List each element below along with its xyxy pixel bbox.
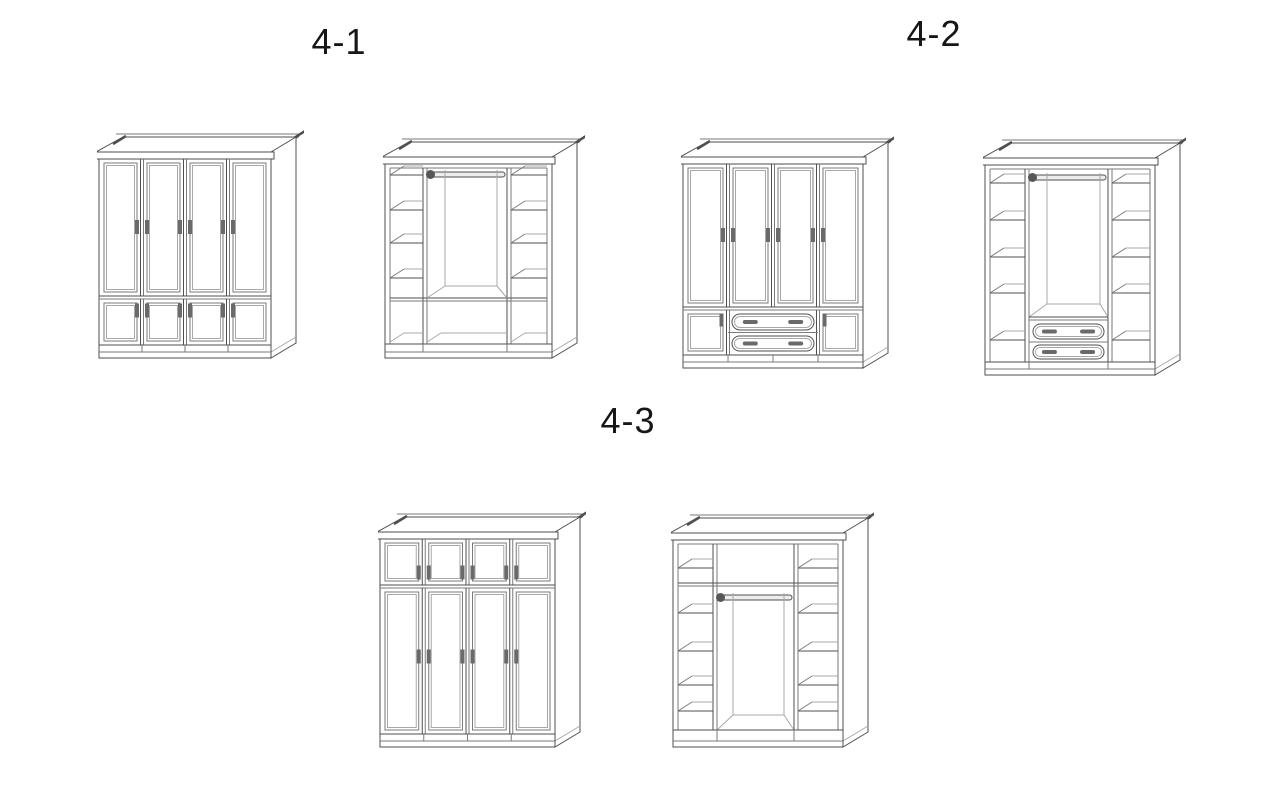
fig-4-1-closed-svg [97, 130, 304, 366]
wardrobe-drawing-4-1-closed [97, 130, 304, 366]
wardrobe-drawing-4-2-open [983, 136, 1186, 383]
group-label-4-1: 4-1 [274, 22, 404, 62]
fig-4-3-closed-svg [378, 510, 586, 755]
wardrobe-drawing-4-2-closed [681, 135, 894, 376]
catalog-page: 4-1 4-2 4-3 [0, 0, 1280, 800]
wardrobe-drawing-4-1-open [383, 135, 585, 366]
wardrobe-drawing-4-3-open [671, 511, 874, 755]
group-label-4-2: 4-2 [869, 14, 999, 54]
fig-4-1-open-svg [383, 135, 585, 366]
fig-4-2-open-svg [983, 136, 1186, 383]
wardrobe-drawing-4-3-closed [378, 510, 586, 755]
group-label-4-3: 4-3 [563, 401, 693, 441]
fig-4-2-closed-svg [681, 135, 894, 376]
fig-4-3-open-svg [671, 511, 874, 755]
